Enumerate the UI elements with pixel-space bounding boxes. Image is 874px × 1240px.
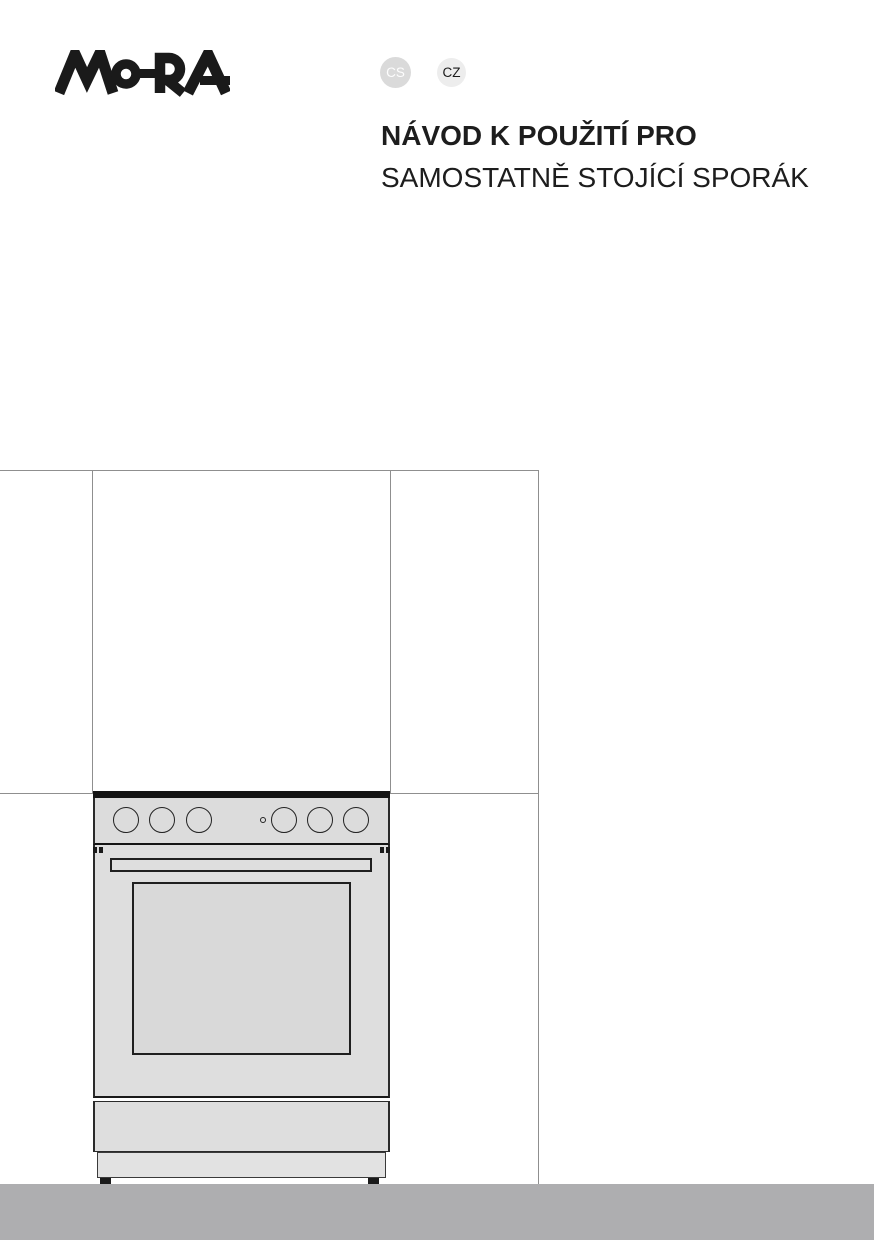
logo-letter-a [188, 54, 226, 93]
mora-logo [55, 50, 230, 100]
oven-knob-icon [307, 807, 333, 833]
language-badge-cz: CZ [437, 58, 466, 87]
language-badge-cs: CS [380, 57, 411, 88]
burner-knob-icon [113, 807, 139, 833]
oven-door-handle [110, 858, 372, 872]
kitchen-counter-top-line [0, 470, 538, 471]
oven-knob-icon [271, 807, 297, 833]
language-badge-cs-label: CS [386, 66, 405, 80]
storage-drawer [93, 1101, 390, 1152]
door-hinge-icon [380, 847, 384, 853]
oven-knob-icon [343, 807, 369, 833]
page-title-line2: SAMOSTATNĚ STOJÍCÍ SPORÁK [381, 162, 809, 194]
logo-letter-m [59, 53, 113, 93]
cooker-hob-edge [93, 791, 390, 798]
page-title-line1: NÁVOD K POUŽITÍ PRO [381, 120, 697, 152]
pilot-light-icon [260, 817, 266, 823]
door-hinge-icon [99, 847, 103, 853]
manual-cover-page: CS CZ NÁVOD K POUŽITÍ PRO SAMOSTATNĚ STO… [0, 0, 874, 1240]
burner-knob-icon [186, 807, 212, 833]
language-badge-cz-label: CZ [443, 66, 461, 80]
cooker-control-panel [93, 798, 390, 845]
logo-letter-o [116, 64, 136, 84]
cooker-plinth [97, 1152, 386, 1178]
logo-letter-r-leg [167, 80, 183, 93]
logo-letter-a-bar [200, 76, 230, 85]
oven-door-window [132, 882, 351, 1055]
kitchen-cabinet-right-line [538, 470, 539, 1184]
door-hinge-icon [93, 847, 97, 853]
logo-dash [140, 69, 155, 78]
footer-floor-bar [0, 1184, 874, 1240]
kitchen-cabinet-mid-line [390, 470, 391, 793]
burner-knob-icon [149, 807, 175, 833]
door-hinge-icon [386, 847, 390, 853]
kitchen-cabinet-left-line [92, 470, 93, 793]
